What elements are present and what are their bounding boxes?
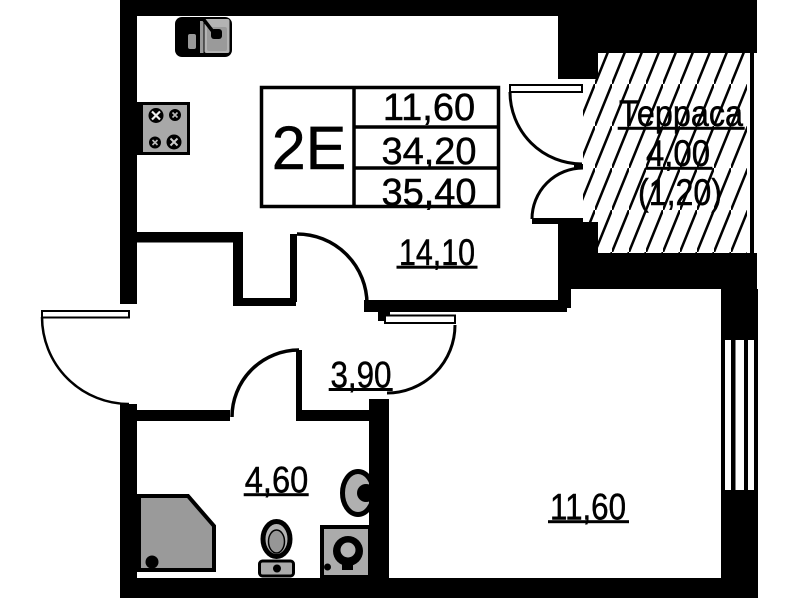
svg-text:11,60: 11,60 xyxy=(383,87,475,129)
svg-text:2E: 2E xyxy=(272,114,347,182)
svg-text:35,40: 35,40 xyxy=(381,172,476,214)
svg-text:(1,20): (1,20) xyxy=(638,171,722,213)
svg-text:34,20: 34,20 xyxy=(381,131,476,173)
